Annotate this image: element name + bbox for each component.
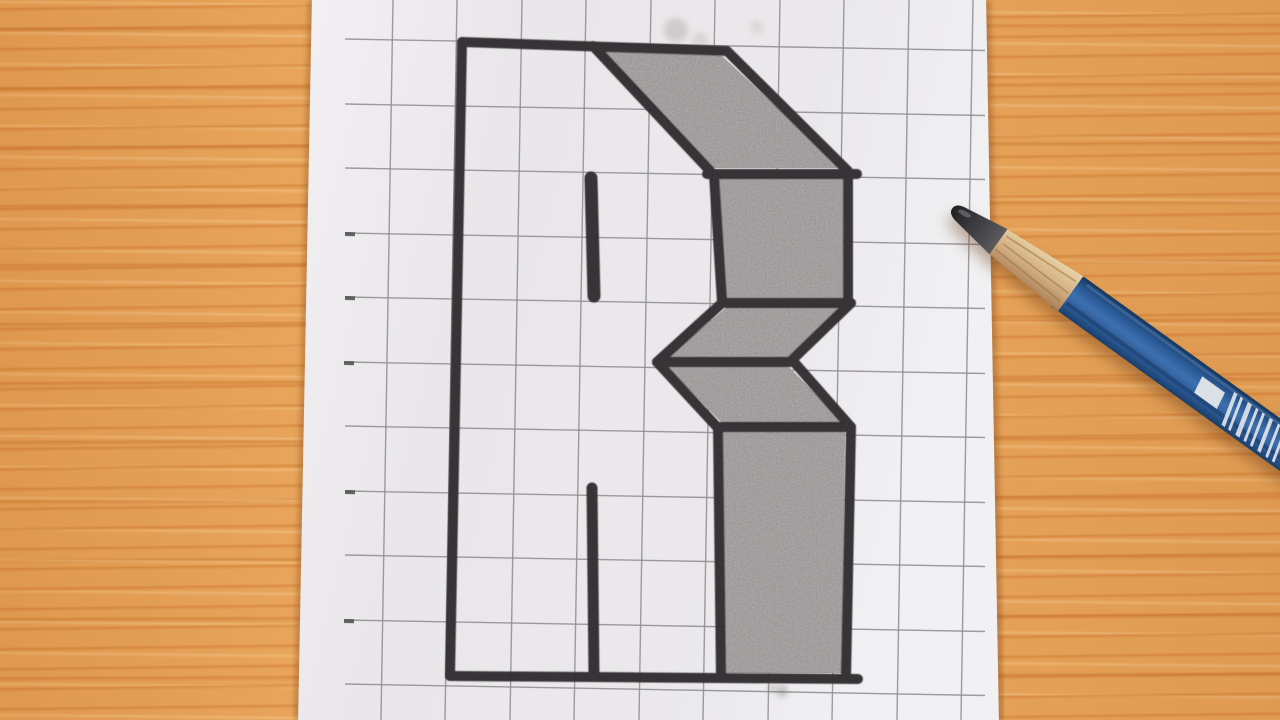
desk-photo xyxy=(0,0,1280,720)
pencil-smudge xyxy=(664,18,688,42)
pencil-smudge xyxy=(776,685,788,697)
marker-stroke xyxy=(718,427,721,678)
pencil-smudge xyxy=(750,20,764,34)
marker-dash xyxy=(591,178,594,296)
marker-stroke xyxy=(450,676,858,679)
pencil-smudge xyxy=(768,684,776,692)
marker-dash xyxy=(592,488,594,676)
marker-stroke xyxy=(846,427,851,678)
scene-svg xyxy=(0,0,1280,720)
